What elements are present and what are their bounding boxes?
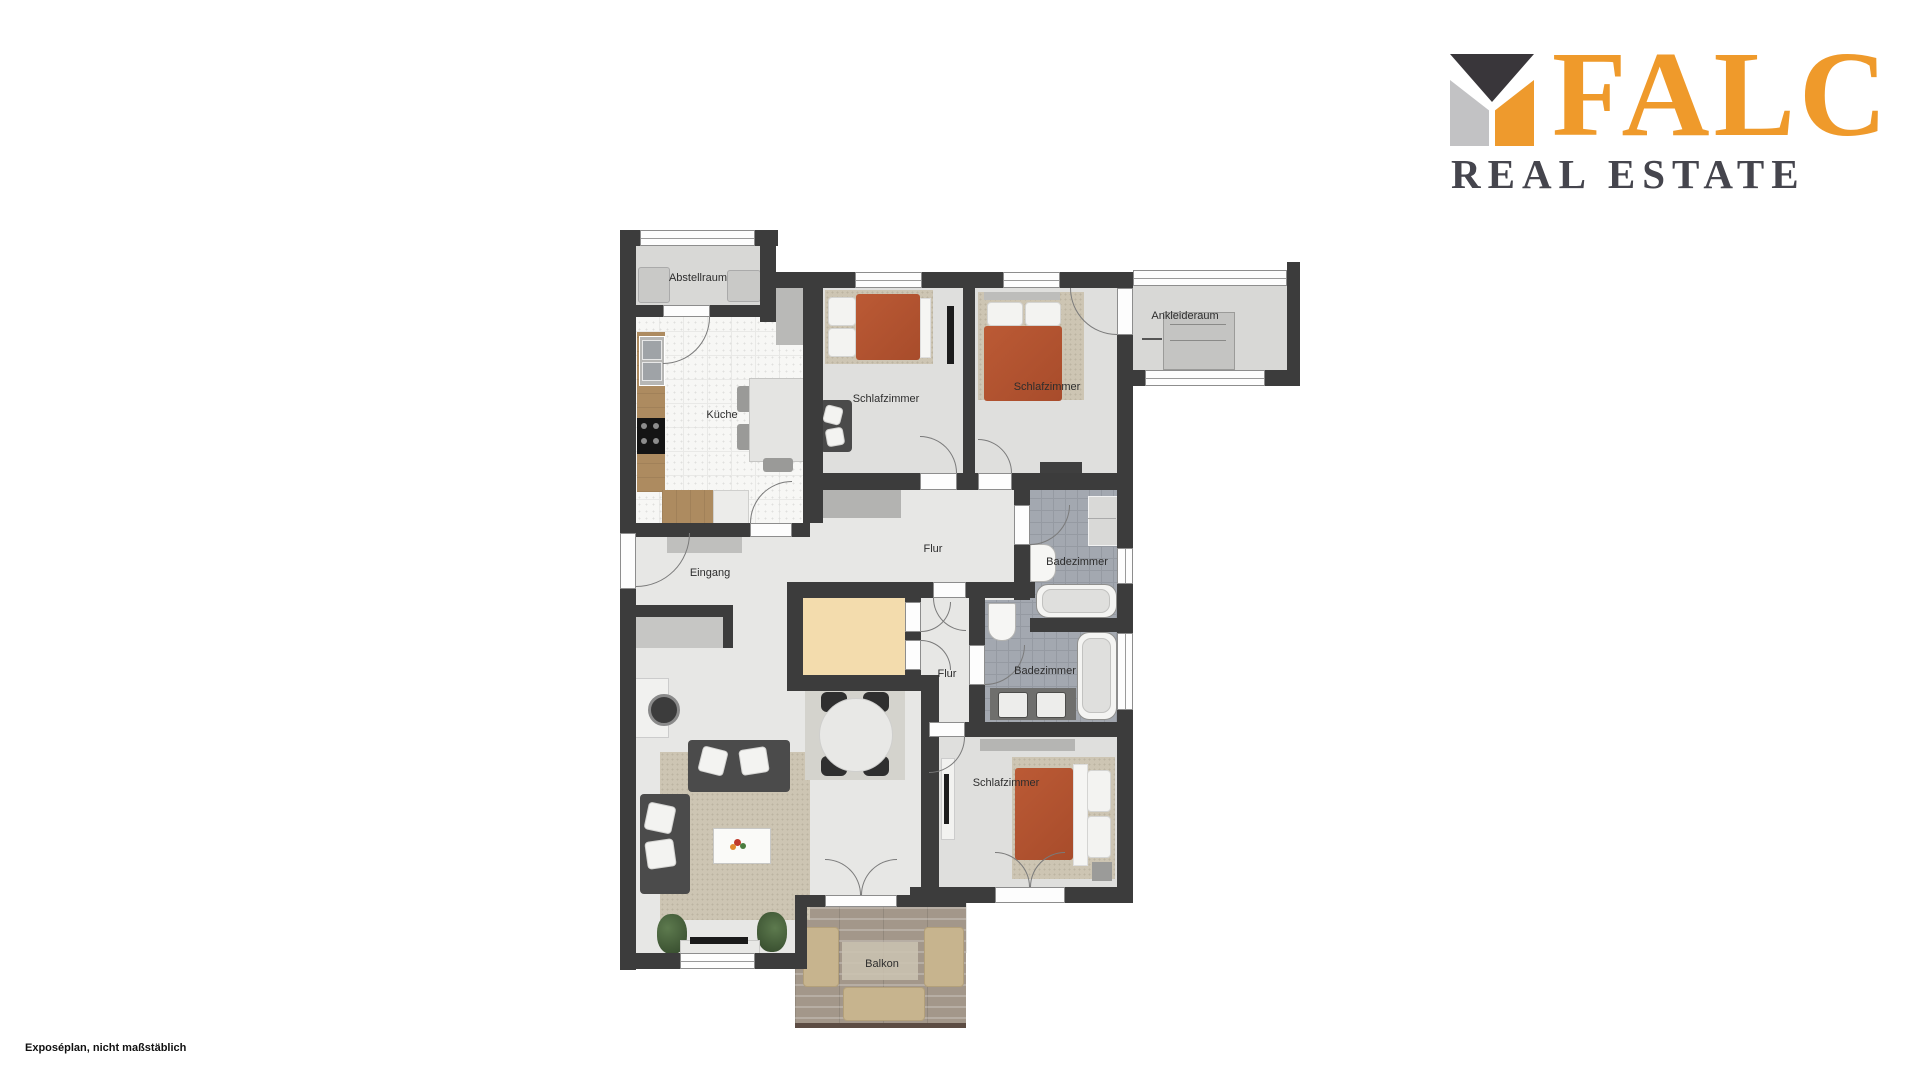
- wall: [969, 590, 985, 645]
- pillow: [987, 302, 1023, 326]
- bench: [1142, 338, 1162, 340]
- window: [1145, 370, 1265, 386]
- storage-shelf: [638, 267, 670, 303]
- stove-burner: [641, 423, 647, 429]
- pillow: [1087, 816, 1111, 858]
- door: [1014, 505, 1030, 545]
- door: [978, 473, 1012, 490]
- nightstand: [1092, 862, 1112, 881]
- room-label-badezimmer-2: Badezimmer: [1014, 665, 1076, 677]
- room-label-schlafzimmer-1: Schlafzimmer: [853, 393, 920, 405]
- room-label-schlafzimmer-2: Schlafzimmer: [1014, 381, 1081, 393]
- kitchen-table: [749, 378, 809, 462]
- kitchen-sink-basin: [642, 340, 662, 360]
- room-label-badezimmer-1: Badezimmer: [1046, 556, 1108, 568]
- window: [855, 272, 922, 288]
- wall: [776, 272, 1133, 288]
- stove-burner: [641, 438, 647, 444]
- window: [680, 953, 755, 969]
- window: [640, 230, 755, 246]
- pillow: [828, 297, 856, 326]
- wall: [905, 670, 921, 691]
- desk-chair: [648, 694, 680, 726]
- door: [663, 305, 710, 317]
- door: [1117, 288, 1133, 335]
- bed-sheet: [1073, 764, 1088, 866]
- bed-headboard: [984, 292, 1060, 300]
- logo-tagline-text: REAL ESTATE: [1451, 150, 1806, 198]
- sideboard: [980, 739, 1075, 751]
- wall: [1287, 262, 1300, 386]
- exterior: [967, 903, 1117, 953]
- door: [933, 582, 966, 598]
- door: [969, 645, 985, 685]
- french-door: [825, 895, 897, 907]
- tv: [944, 774, 949, 824]
- door: [920, 473, 957, 490]
- sofa-cushion: [643, 801, 676, 834]
- shower-door-line: [1088, 518, 1116, 519]
- window: [1117, 548, 1133, 584]
- exterior: [803, 228, 1117, 272]
- entrance-door: [620, 533, 636, 589]
- shower: [1088, 496, 1118, 546]
- wall: [1117, 272, 1133, 288]
- wall: [1014, 490, 1030, 505]
- kitchen-sink-basin: [642, 362, 662, 381]
- wall: [620, 230, 636, 970]
- window: [1133, 270, 1287, 286]
- flower-vase: [730, 844, 736, 850]
- exterior: [776, 228, 803, 272]
- storage-shelf: [727, 270, 761, 302]
- pillow: [1025, 302, 1061, 326]
- toilet: [988, 603, 1016, 641]
- wall: [623, 605, 733, 617]
- pillow: [828, 328, 856, 357]
- wall: [1133, 370, 1145, 386]
- bathtub-inner: [1042, 589, 1110, 613]
- stove-burner: [653, 438, 659, 444]
- room-label-balkon: Balkon: [865, 958, 899, 970]
- outdoor-sofa: [924, 927, 964, 987]
- wall: [969, 685, 985, 722]
- kitchen-counter: [662, 490, 715, 523]
- stove-burner: [653, 423, 659, 429]
- footer-disclaimer: Exposéplan, nicht maßstäblich: [25, 1042, 186, 1054]
- kitchen-cabinet: [776, 288, 803, 345]
- french-door: [995, 887, 1065, 903]
- falc-logo: FALC REAL ESTATE: [1450, 38, 1880, 198]
- round-dining-table: [819, 698, 893, 772]
- window: [1003, 272, 1060, 288]
- pillow: [825, 427, 846, 448]
- falc-logo-mark: [1450, 54, 1534, 146]
- balcony-edge: [795, 1023, 966, 1028]
- room-label-ankleideraum: Ankleideraum: [1151, 310, 1218, 322]
- potted-plant: [757, 912, 787, 952]
- wall: [1265, 370, 1300, 386]
- wall: [792, 523, 810, 537]
- room-label-kueche: Küche: [706, 409, 737, 421]
- wall: [1117, 335, 1133, 903]
- beige-room-floor: [803, 598, 905, 675]
- sofa-cushion: [644, 838, 677, 870]
- room-label-flur-1: Flur: [924, 543, 943, 555]
- sideboard: [813, 490, 901, 518]
- floor-plan: Abstellraum Küche Schlafzimmer Schlafzim…: [618, 228, 1300, 1028]
- wall: [803, 473, 920, 490]
- door: [929, 722, 965, 737]
- bed-blanket: [856, 294, 920, 360]
- tv: [947, 306, 954, 364]
- wall: [963, 288, 975, 473]
- sofa-cushion: [738, 746, 770, 776]
- door: [905, 602, 921, 632]
- wall: [795, 907, 807, 969]
- room-label-schlafzimmer-3: Schlafzimmer: [973, 777, 1040, 789]
- flower-vase: [740, 843, 746, 849]
- wall: [957, 473, 978, 490]
- door: [750, 523, 792, 537]
- closet: [635, 617, 723, 648]
- dining-chair: [763, 458, 793, 472]
- wall: [921, 722, 929, 737]
- wardrobe-shelf-lines: [1170, 324, 1226, 325]
- wardrobe-shelf-lines: [1170, 340, 1226, 341]
- outdoor-sofa: [843, 987, 925, 1021]
- wall: [965, 722, 1117, 737]
- sink: [998, 692, 1028, 718]
- pillow: [1087, 770, 1111, 812]
- wall: [620, 305, 663, 317]
- wall: [1030, 618, 1117, 632]
- kitchen-cabinet: [713, 490, 749, 525]
- tv: [690, 937, 748, 944]
- door: [905, 640, 921, 670]
- logo-brand-text: FALC: [1552, 34, 1891, 156]
- room-label-abstellraum: Abstellraum: [669, 272, 727, 284]
- wall: [1012, 473, 1117, 490]
- wall: [905, 632, 921, 640]
- wall: [723, 605, 733, 648]
- room-label-eingang: Eingang: [690, 567, 730, 579]
- outdoor-sofa: [803, 927, 839, 987]
- wall: [710, 305, 776, 317]
- window: [1117, 633, 1133, 710]
- sink: [1036, 692, 1066, 718]
- wall: [905, 582, 921, 602]
- room-label-flur-2: Flur: [938, 668, 957, 680]
- bathtub-inner: [1082, 638, 1111, 713]
- bed-sheet: [920, 298, 931, 358]
